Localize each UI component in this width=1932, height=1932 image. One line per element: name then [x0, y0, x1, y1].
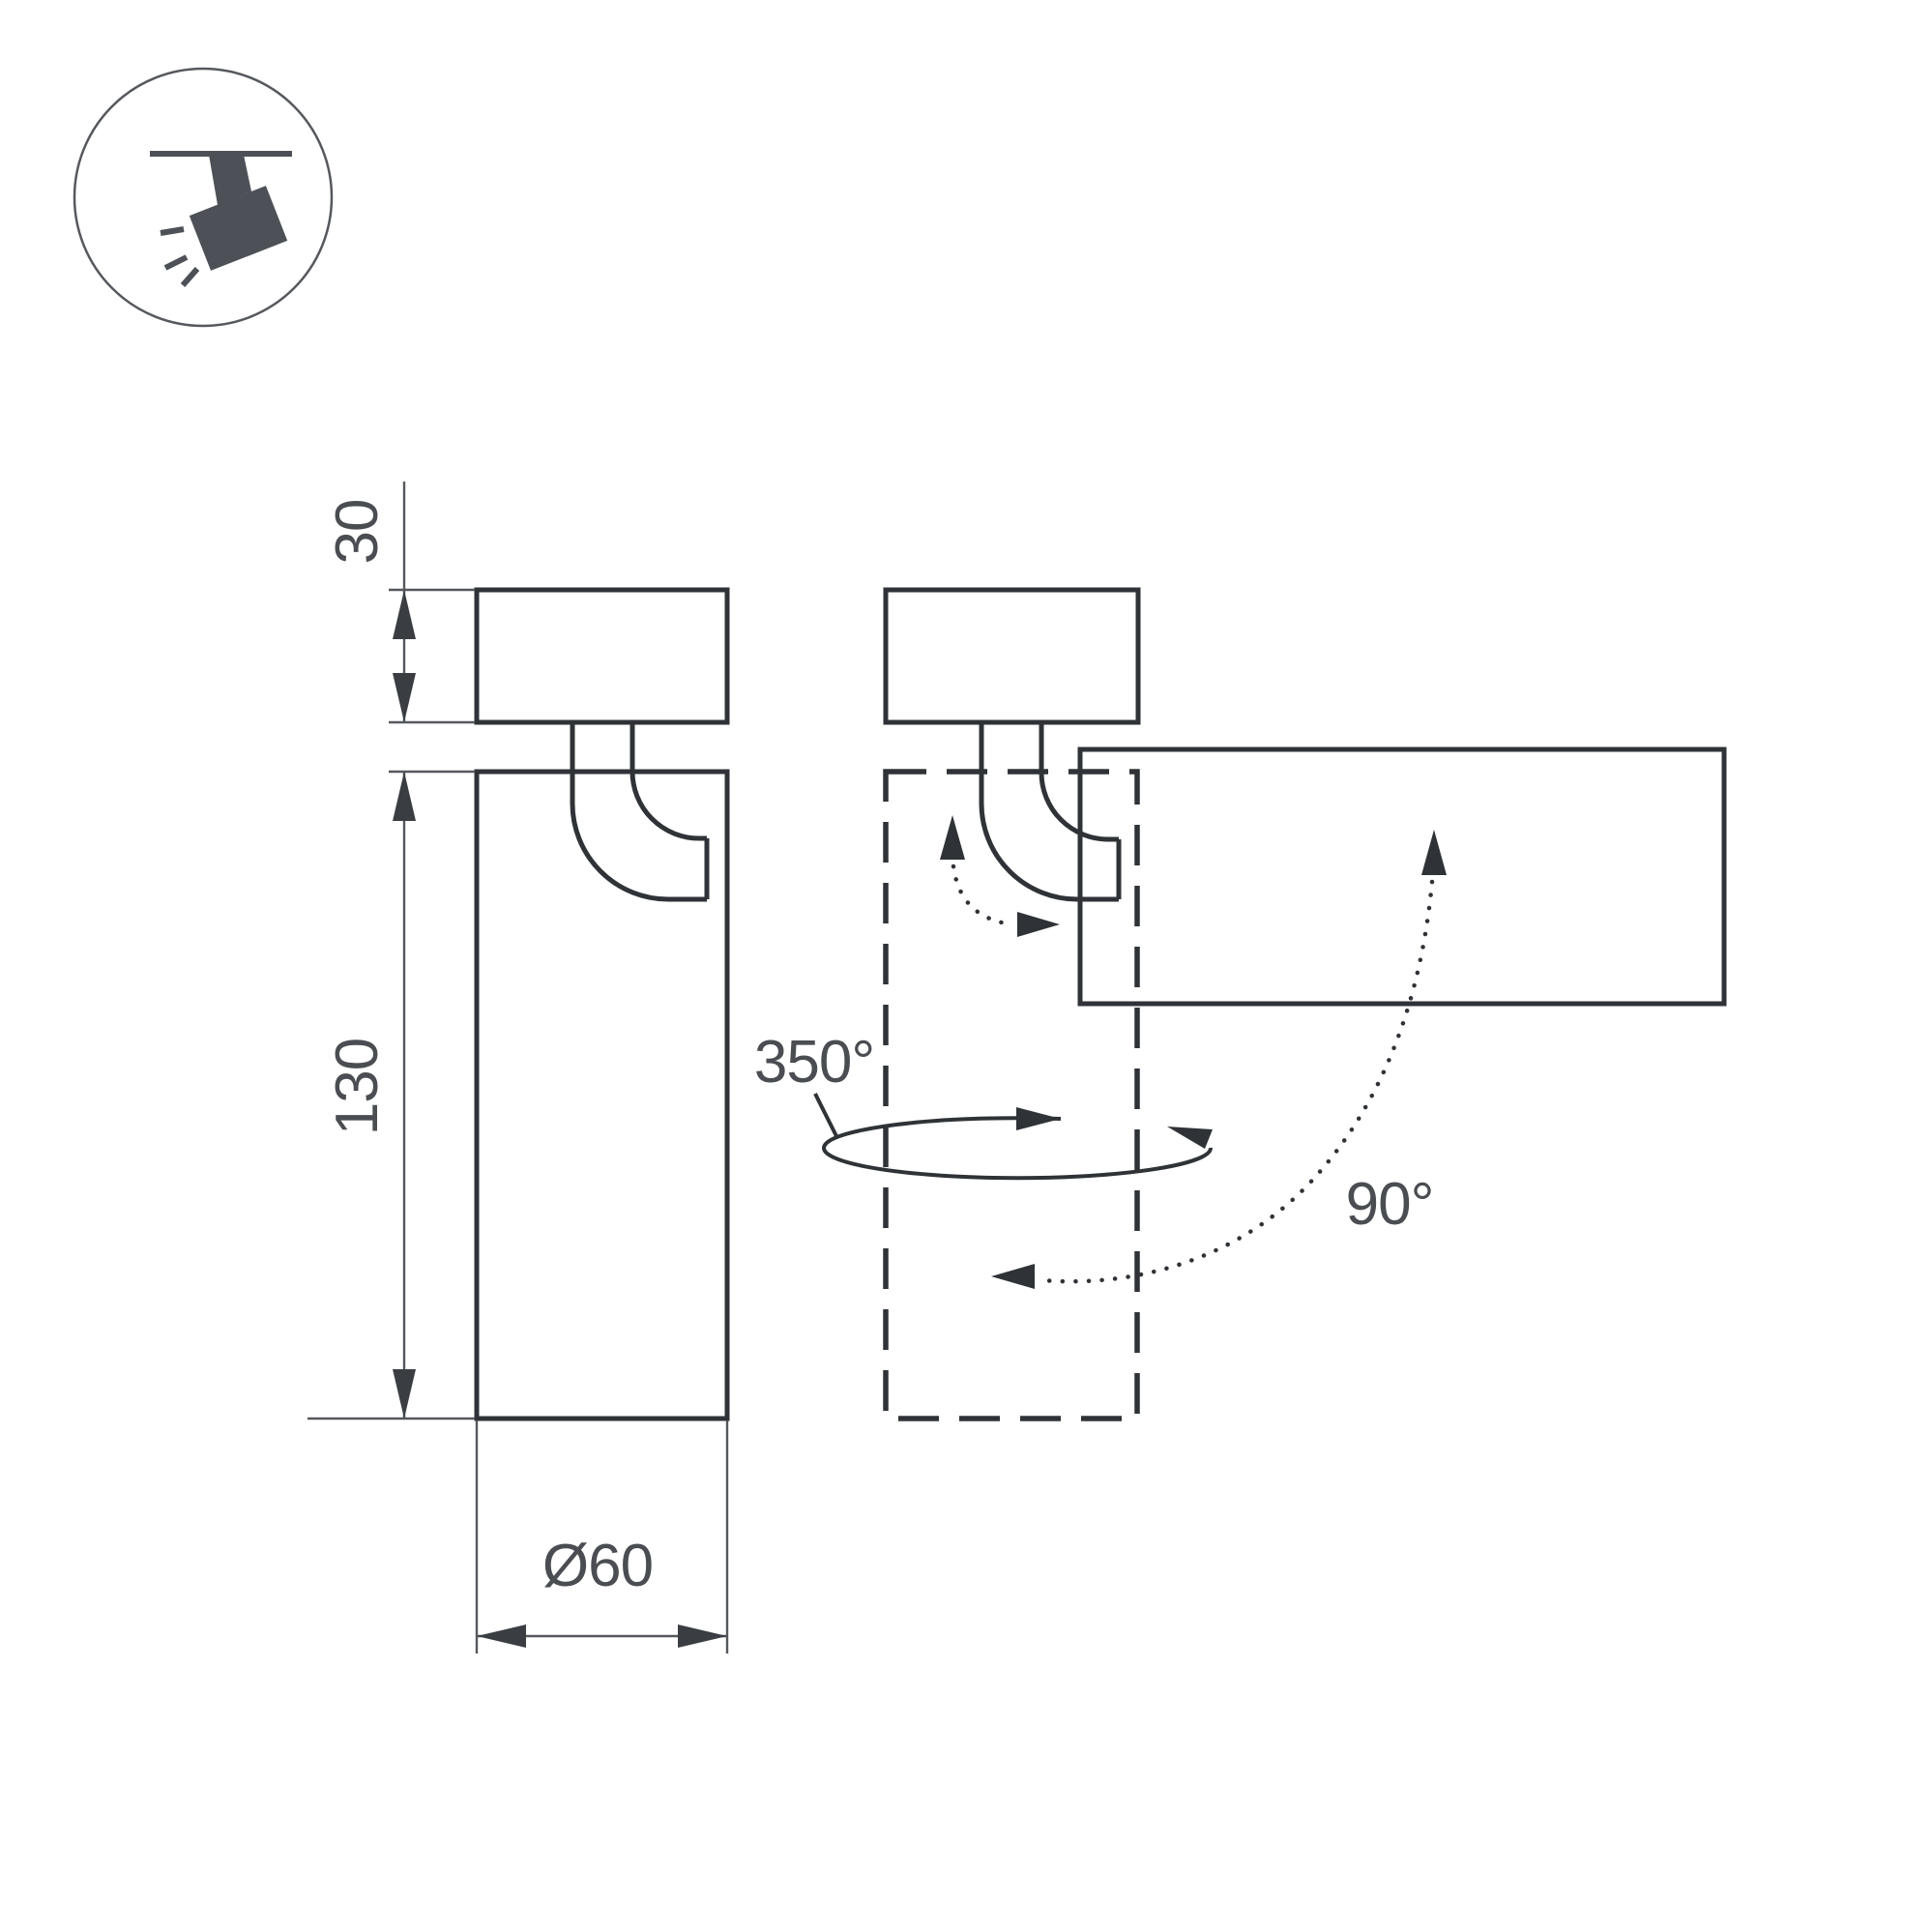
dim60-arrow-left — [477, 1625, 526, 1648]
swivel-arrowhead-front — [1016, 1107, 1061, 1130]
tilt-joint-arc-dotted — [953, 866, 1011, 924]
tilt-sweep-arrow-left — [991, 1264, 1035, 1289]
dim30-arrow-up — [393, 590, 416, 639]
dim130-label: 130 — [324, 1039, 391, 1135]
side-body-horizontal — [1080, 749, 1724, 1004]
front-body — [477, 772, 727, 1419]
tilt-rotation-annotation: 90° — [940, 815, 1447, 1289]
front-mounting-base — [477, 590, 727, 722]
swivel-angle-label: 350° — [754, 1029, 874, 1096]
dim60-label: Ø60 — [542, 1533, 653, 1599]
tilt-sweep-arrow-up — [1421, 830, 1447, 875]
front-elbow-inner — [632, 722, 707, 838]
icon-circle — [74, 69, 332, 326]
dim60-arrow-right — [678, 1625, 727, 1648]
swivel-arrowhead-back — [1167, 1127, 1213, 1149]
side-view — [886, 590, 1724, 1419]
spotlight-dimension-drawing: 30 130 Ø60 350° — [0, 0, 1932, 1932]
swivel-rotation-annotation: 350° — [754, 1029, 1213, 1178]
tilt-angle-label: 90° — [1346, 1171, 1434, 1238]
dim130-arrow-down — [393, 1369, 416, 1419]
tilt-joint-arrow-up — [940, 815, 965, 860]
dimension-diameter: Ø60 — [477, 1420, 727, 1654]
side-mounting-base — [886, 590, 1138, 722]
dim30-label: 30 — [324, 500, 391, 565]
drawing-svg: 30 130 Ø60 350° — [0, 0, 1932, 1932]
dimension-base-height: 30 — [324, 482, 475, 722]
front-view — [477, 590, 727, 1419]
tilt-joint-arrow-right — [1017, 912, 1060, 937]
track-spotlight-icon — [74, 69, 332, 326]
dimension-body-length: 130 — [307, 772, 475, 1419]
swivel-leader-line — [815, 1094, 837, 1138]
front-elbow-outer — [572, 722, 707, 899]
dim130-arrow-up — [393, 772, 416, 821]
dim30-arrow-down — [393, 673, 416, 722]
side-body-ghost-dashed — [886, 772, 1137, 1419]
